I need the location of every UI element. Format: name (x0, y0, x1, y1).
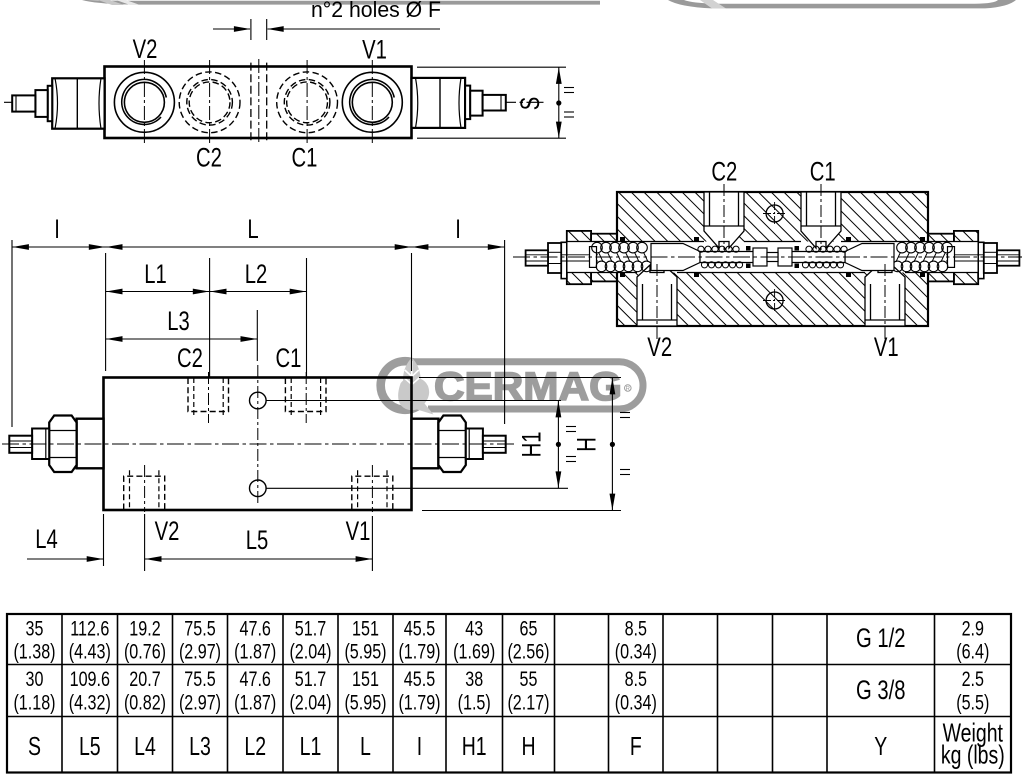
svg-text:(0.82): (0.82) (124, 690, 166, 714)
svg-text:F: F (630, 731, 642, 761)
svg-text:I: I (455, 214, 461, 244)
svg-text:S: S (28, 731, 41, 761)
svg-text:38: 38 (465, 667, 483, 691)
svg-text:L1: L1 (144, 259, 167, 289)
svg-text:(1.87): (1.87) (234, 640, 276, 664)
svg-text:(0.76): (0.76) (124, 640, 166, 664)
svg-text:151: 151 (352, 616, 379, 640)
svg-text:(1.18): (1.18) (13, 690, 55, 714)
svg-text:8.5: 8.5 (625, 616, 647, 640)
svg-text:H: H (572, 437, 602, 452)
svg-text:R: R (626, 386, 631, 392)
svg-text:(2.04): (2.04) (289, 690, 331, 714)
svg-text:L5: L5 (246, 525, 269, 555)
svg-text:19.2: 19.2 (129, 616, 160, 640)
svg-text:V1: V1 (362, 35, 387, 65)
svg-text:2.5: 2.5 (962, 667, 984, 691)
svg-text:43: 43 (465, 616, 483, 640)
svg-text:(1.5): (1.5) (458, 690, 491, 714)
svg-text:kg (lbs): kg (lbs) (941, 740, 1005, 770)
svg-text:C1: C1 (276, 343, 302, 373)
svg-text:(2.97): (2.97) (179, 640, 221, 664)
svg-text:I: I (417, 731, 422, 761)
svg-text:L: L (360, 731, 371, 761)
svg-text:(1.79): (1.79) (398, 640, 440, 664)
svg-text:G 1/2: G 1/2 (856, 623, 906, 653)
svg-text:C2: C2 (177, 343, 203, 373)
svg-text:20.7: 20.7 (129, 667, 160, 691)
svg-text:(2.17): (2.17) (507, 690, 549, 714)
svg-text:47.6: 47.6 (240, 616, 271, 640)
svg-text:H1: H1 (517, 431, 547, 457)
svg-text:L5: L5 (79, 731, 101, 761)
svg-text:H: H (521, 731, 535, 761)
svg-text:G 3/8: G 3/8 (856, 675, 906, 705)
svg-text:51.7: 51.7 (295, 667, 326, 691)
svg-text:(1.79): (1.79) (398, 690, 440, 714)
svg-text:(5.5): (5.5) (956, 690, 989, 714)
svg-text:(1.87): (1.87) (234, 690, 276, 714)
svg-text:75.5: 75.5 (184, 667, 215, 691)
svg-text:(2.97): (2.97) (179, 690, 221, 714)
svg-text:Y: Y (874, 731, 887, 761)
svg-text:(2.56): (2.56) (507, 640, 549, 664)
svg-text:(5.95): (5.95) (344, 640, 386, 664)
svg-text:V1: V1 (874, 332, 899, 362)
svg-text:V2: V2 (155, 516, 180, 546)
svg-text:(0.34): (0.34) (615, 690, 657, 714)
svg-text:L2: L2 (244, 731, 266, 761)
svg-text:CERMAG: CERMAG (434, 365, 622, 409)
svg-text:55: 55 (520, 667, 538, 691)
svg-text:30: 30 (26, 667, 44, 691)
svg-text:(5.95): (5.95) (344, 690, 386, 714)
svg-text:35: 35 (26, 616, 44, 640)
svg-text:L4: L4 (35, 524, 58, 554)
svg-text:(0.34): (0.34) (615, 640, 657, 664)
svg-text:(4.32): (4.32) (69, 690, 111, 714)
svg-text:V1: V1 (346, 516, 371, 546)
svg-text:(6.4): (6.4) (956, 640, 989, 664)
svg-text:V2: V2 (647, 332, 672, 362)
svg-text:L: L (247, 214, 258, 244)
svg-text:L1: L1 (300, 731, 322, 761)
svg-text:V2: V2 (133, 34, 158, 64)
svg-text:51.7: 51.7 (295, 616, 326, 640)
svg-text:C2: C2 (196, 143, 222, 173)
svg-text:S: S (515, 97, 545, 111)
svg-text:(2.04): (2.04) (289, 640, 331, 664)
svg-text:L2: L2 (245, 259, 268, 289)
svg-text:C2: C2 (711, 157, 737, 187)
svg-text:L3: L3 (189, 731, 211, 761)
svg-text:L4: L4 (134, 731, 156, 761)
svg-text:H1: H1 (462, 731, 487, 761)
svg-text:45.5: 45.5 (404, 667, 435, 691)
svg-text:45.5: 45.5 (404, 616, 435, 640)
svg-text:n°2 holes Ø F: n°2 holes Ø F (311, 0, 441, 22)
svg-text:47.6: 47.6 (240, 667, 271, 691)
svg-text:2.9: 2.9 (962, 616, 984, 640)
svg-text:75.5: 75.5 (184, 616, 215, 640)
svg-text:C1: C1 (810, 157, 836, 187)
svg-text:65: 65 (520, 616, 538, 640)
svg-text:(4.43): (4.43) (69, 640, 111, 664)
svg-text:I: I (54, 214, 60, 244)
svg-text:112.6: 112.6 (70, 616, 109, 640)
svg-text:(1.38): (1.38) (13, 640, 55, 664)
svg-text:L3: L3 (167, 306, 190, 336)
svg-text:C1: C1 (292, 143, 318, 173)
svg-text:(1.69): (1.69) (453, 640, 495, 664)
svg-text:8.5: 8.5 (625, 667, 647, 691)
svg-text:151: 151 (352, 667, 379, 691)
svg-text:109.6: 109.6 (70, 667, 110, 691)
